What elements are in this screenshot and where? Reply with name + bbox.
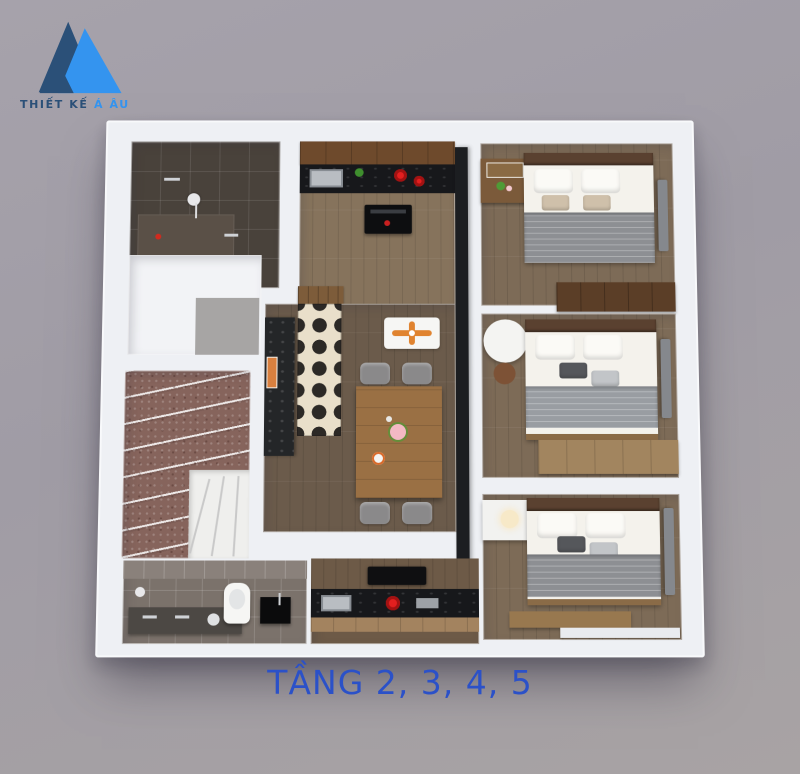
black-vanity-sink: [260, 597, 291, 624]
bedroom-3: [482, 494, 682, 640]
dining-chair: [402, 502, 432, 524]
kitchen-sink-icon: [310, 169, 344, 187]
toilet-seat: [229, 589, 245, 609]
pillow: [581, 169, 621, 193]
dish-tray-icon: [416, 598, 438, 608]
bath-accessory-red: [155, 234, 161, 240]
bedroom2-round-table: [483, 319, 527, 362]
logo-triangle-icon: [36, 16, 128, 98]
foyer: [127, 255, 261, 355]
cushion: [557, 536, 585, 552]
brand-name-primary: THIẾT KẾ: [20, 98, 89, 111]
kitchen-counter: [300, 164, 455, 193]
wall-art: [266, 357, 277, 389]
dining-chair: [360, 502, 390, 524]
cushion: [591, 371, 619, 387]
bedroom2-stool: [494, 363, 516, 385]
staircase: [121, 371, 250, 559]
bed-1: [524, 153, 655, 263]
stair-railing: [232, 476, 239, 557]
bathroom-wall-tiles: [123, 561, 307, 579]
bed3-headboard: [527, 498, 660, 511]
flower-icon: [506, 186, 512, 192]
kitchen-cabinets: [300, 141, 455, 164]
bed1-headboard: [524, 153, 654, 165]
bed1-duvet: [524, 212, 655, 262]
oven-icon: [364, 205, 411, 234]
fan-hub: [409, 330, 415, 336]
patterned-tile-corridor: [297, 304, 342, 436]
kitchen-bottom-counter: [311, 589, 479, 618]
pillow: [585, 513, 626, 538]
dining-chair: [360, 363, 390, 385]
plant-icon: [355, 168, 364, 177]
bed-bench: [509, 611, 631, 627]
oven-light: [384, 220, 390, 226]
kitchen-sink-icon: [321, 595, 351, 611]
foyer-floor-shade: [195, 298, 259, 355]
cushion: [559, 363, 587, 379]
oven-handle: [370, 210, 405, 214]
stair-railing: [189, 479, 210, 554]
brand-logo: THIẾT KẾ Á ÂU: [16, 10, 166, 114]
shower-arm-icon: [195, 203, 197, 218]
faucet-icon: [175, 615, 189, 618]
stair-railing: [211, 476, 225, 556]
cushion: [583, 195, 611, 210]
sink-basin-icon: [207, 613, 219, 625]
stove-burner-icon: [414, 176, 425, 187]
brand-name-accent: Á ÂU: [94, 98, 130, 111]
plate-icon: [372, 452, 385, 465]
tv-panel-icon: [663, 508, 675, 595]
cup-icon: [386, 416, 392, 422]
floor-caption: TẦNG 2, 3, 4, 5: [0, 663, 800, 702]
bed3-duvet: [527, 554, 661, 597]
pillow: [583, 335, 623, 360]
pillow: [537, 513, 578, 538]
shower-head-icon: [135, 587, 145, 597]
bathroom-bottom: [122, 561, 307, 645]
kitchen-top: [299, 141, 456, 307]
dining-chair: [402, 363, 432, 385]
tv-panel-icon: [660, 339, 671, 418]
flower-vase-icon: [496, 182, 505, 191]
kitchen-bottom: [311, 558, 480, 644]
dining-area: [263, 304, 456, 532]
pillow: [535, 335, 575, 360]
toilet-icon: [224, 583, 251, 624]
lamp-icon: [501, 510, 519, 528]
wardrobe-dark: [556, 282, 675, 311]
faucet-icon: [143, 615, 157, 618]
shower-head-icon: [187, 193, 200, 206]
ceiling-fan-panel: [384, 317, 440, 348]
dining-table: [356, 386, 442, 498]
bath-towel-bar-icon: [224, 234, 238, 237]
bed3-base: [528, 599, 662, 605]
bed2-duvet: [526, 386, 658, 428]
bed-3: [527, 498, 662, 605]
flower-centerpiece-icon: [390, 424, 406, 440]
wardrobe-light: [538, 440, 679, 474]
entry-door: [298, 286, 344, 304]
brand-name: THIẾT KẾ Á ÂU: [20, 98, 170, 111]
stove-burner-icon: [394, 169, 407, 181]
bed-2: [525, 319, 658, 440]
floor-plan-render: [95, 120, 705, 657]
bath-faucet-icon: [164, 178, 180, 181]
faucet-icon: [279, 593, 281, 605]
bed2-headboard: [525, 319, 656, 332]
tv-panel-icon: [657, 180, 668, 251]
counter-wood-edge: [311, 617, 479, 631]
stair-landing: [188, 470, 249, 559]
pillow: [534, 169, 574, 193]
cushion: [542, 195, 570, 210]
floor-step: [560, 628, 680, 638]
hood-appliance-icon: [368, 567, 427, 585]
stove-burner-icon: [386, 596, 400, 610]
bedroom-2: [481, 314, 679, 478]
desk-tray: [486, 162, 523, 177]
